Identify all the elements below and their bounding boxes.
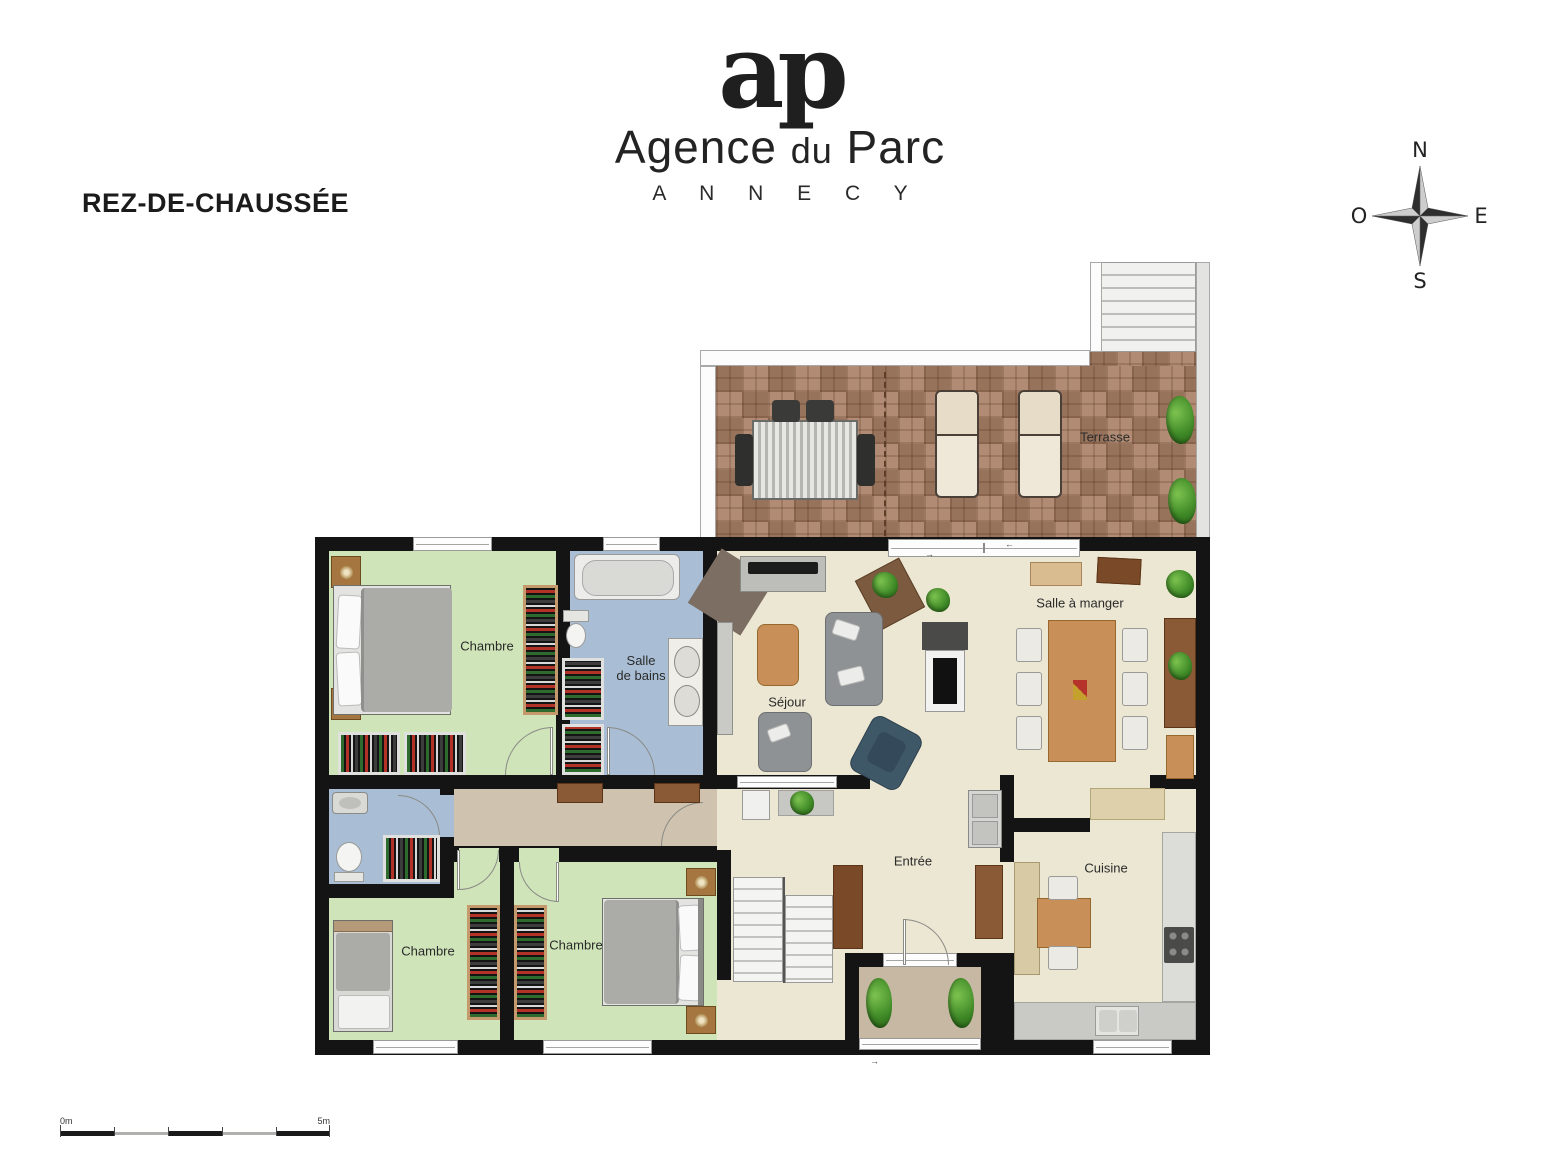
window-sejour-sill [737, 776, 837, 788]
wc-sink [332, 792, 368, 814]
bathtub [574, 554, 680, 600]
terrace-floor-landing [1090, 352, 1196, 366]
single-bed [333, 920, 393, 1032]
vanity-double-sink [668, 638, 703, 726]
label-salle-l1: Salle [616, 653, 665, 668]
nightstand-4 [686, 1006, 716, 1034]
sliding-door-divider [983, 543, 985, 553]
tv-icon [748, 562, 818, 574]
dining-sideboard-light [1030, 562, 1082, 586]
scale-tick-2 [168, 1127, 169, 1136]
logo-name-parc: Parc [847, 121, 946, 173]
logo-city: A N N E C Y [540, 182, 1020, 206]
sejour-plant-3 [790, 791, 814, 815]
window-bedroom-bl [373, 1040, 458, 1054]
scale-tick-4 [276, 1127, 277, 1136]
compass-east-label: E [1474, 204, 1487, 228]
page-title: REZ-DE-CHAUSSÉE [82, 188, 349, 219]
coffee-table [757, 624, 799, 686]
stairs-divider [783, 877, 785, 983]
terrace-plant-1 [1166, 396, 1194, 444]
armchair-gray [758, 712, 812, 772]
label-terrasse: Terrasse [1080, 430, 1130, 445]
fireplace-glass [933, 658, 957, 704]
label-chambre-bm: Chambre [549, 938, 602, 953]
toilet-bowl [566, 623, 586, 648]
terrace-plant-2 [1168, 478, 1196, 524]
kitchen-counter-right [1162, 832, 1196, 1002]
terrace-bench-right [857, 434, 875, 486]
wc-toilet-bowl [336, 842, 362, 872]
sejour-sideboard [717, 622, 733, 735]
scale-tick-0 [60, 1125, 61, 1137]
terrace-left-rail [700, 366, 716, 540]
compass-rose: N E S O [1350, 138, 1490, 290]
clothes-rack-bm [514, 905, 547, 1020]
kitchen-cabinet-top [1090, 788, 1165, 820]
terrace-top-rail [700, 350, 1090, 366]
scale-bar: 0m 5m [60, 1116, 330, 1140]
label-sejour: Séjour [768, 695, 806, 710]
label-chambre-top: Chambre [460, 639, 513, 654]
fireplace-top [922, 622, 968, 650]
sejour-plant-2 [926, 588, 950, 612]
dining-chair-l1 [1016, 628, 1042, 662]
double-bed-top [333, 585, 451, 715]
wardrobe-top-2 [404, 732, 466, 775]
sliding-door-porch [859, 1038, 981, 1050]
clothes-rack-top [523, 585, 558, 715]
dining-chair-r3 [1122, 716, 1148, 750]
logo-name-du: du [791, 130, 833, 171]
stairs-flight-1 [733, 877, 783, 982]
bathroom-wardrobe-2 [562, 724, 604, 775]
wall-kitchen-top [1005, 818, 1090, 832]
kitchen-chair-bottom [1048, 946, 1078, 970]
scale-tick-5 [329, 1125, 330, 1137]
compass-south-label: S [1413, 269, 1426, 293]
sun-lounger-2 [1018, 390, 1062, 498]
table-centerpiece [1073, 680, 1087, 700]
cooktop [1164, 927, 1194, 963]
label-salle-de-bains: Salle de bains [616, 653, 665, 683]
terrace-right-wall [1196, 262, 1210, 540]
terrace-chair-2 [806, 400, 834, 422]
buffet-plant [1168, 652, 1192, 680]
wall-porch-right [981, 953, 1014, 1055]
dining-plant-top [1166, 570, 1194, 598]
sejour-plant-1 [872, 572, 898, 598]
dining-chair-l3 [1016, 716, 1042, 750]
logo-name: Agence du Parc [540, 120, 1020, 174]
toilet-tank [563, 610, 589, 622]
label-cuisine: Cuisine [1084, 861, 1127, 876]
window-bedroom-bm [543, 1040, 652, 1054]
door-leaf-bedroom-top [550, 727, 553, 775]
window-bedroom-top [413, 537, 492, 551]
compass-west-label: O [1351, 204, 1368, 228]
dining-chair-l2 [1016, 672, 1042, 706]
dining-chair-r2 [1122, 672, 1148, 706]
door-threshold-bedroom-bm [519, 848, 559, 862]
wardrobe-top-1 [338, 732, 400, 775]
wc-toilet-tank [334, 872, 364, 882]
terrace-table [752, 420, 858, 500]
compass-north-label: N [1412, 138, 1428, 162]
floor-plan-page: REZ-DE-CHAUSSÉE ap Agence du Parc A N N … [0, 0, 1560, 1170]
nightstand-1 [331, 556, 361, 588]
wc-door-threshold [440, 795, 454, 837]
stairs-left-rail [1090, 262, 1102, 352]
wall-stairwell [717, 850, 731, 980]
porch-arrow: → [870, 1056, 879, 1066]
entree-cabinet-tall [833, 865, 863, 949]
label-salle-a-manger: Salle à manger [1036, 596, 1123, 611]
terrace-chair-1 [772, 400, 800, 422]
exterior-stairs [1090, 262, 1196, 352]
label-chambre-bl: Chambre [401, 944, 454, 959]
logo-name-agence: Agence [615, 121, 777, 173]
hallway-mat-1 [557, 783, 603, 803]
window-bathroom [603, 537, 660, 551]
scale-tick-3 [222, 1127, 223, 1136]
kitchen-sink [1095, 1006, 1139, 1036]
logo-monogram-icon: ap [540, 26, 1020, 120]
door-leaf-bedroom-bm [556, 862, 559, 902]
nightstand-3 [686, 868, 716, 896]
kitchen-chair-top [1048, 876, 1078, 900]
agency-logo: ap Agence du Parc A N N E C Y [540, 26, 1020, 206]
entree-cabinet-right [975, 865, 1003, 939]
sun-lounger-1 [935, 390, 979, 498]
terrace-bench-left [735, 434, 753, 486]
compass-star-icon [1358, 154, 1482, 278]
door-leaf-bathroom [607, 727, 610, 775]
door-leaf-entrance [903, 919, 906, 965]
wc-wardrobe [383, 835, 440, 882]
wall-porch-left [845, 953, 859, 1055]
dining-chair-r1 [1122, 628, 1148, 662]
scale-segments [60, 1129, 330, 1137]
porch-plant-right [948, 978, 974, 1028]
double-bed-bottom [602, 898, 704, 1006]
side-table [742, 790, 770, 820]
dining-cabinet-low [1166, 735, 1194, 779]
scale-tick-1 [114, 1127, 115, 1136]
kitchen-table [1037, 898, 1091, 948]
hallway-mat-2 [654, 783, 700, 803]
terrace-divider-line [884, 372, 886, 536]
label-entree: Entrée [894, 854, 932, 869]
door-leaf-bedroom-bl [457, 850, 460, 890]
dining-sideboard-dark [1096, 557, 1141, 585]
entree-shelf [968, 790, 1002, 848]
slide-arrow-2: → [925, 549, 934, 559]
label-salle-l2: de bains [616, 668, 665, 683]
window-kitchen [1093, 1040, 1172, 1054]
porch-plant-left [866, 978, 892, 1028]
scale-start-label: 0m [60, 1116, 73, 1126]
clothes-rack-bl [467, 905, 500, 1020]
stairs-flight-2 [785, 895, 833, 983]
slide-arrow-1: ← [1005, 539, 1014, 549]
bathroom-wardrobe-1 [562, 658, 604, 720]
